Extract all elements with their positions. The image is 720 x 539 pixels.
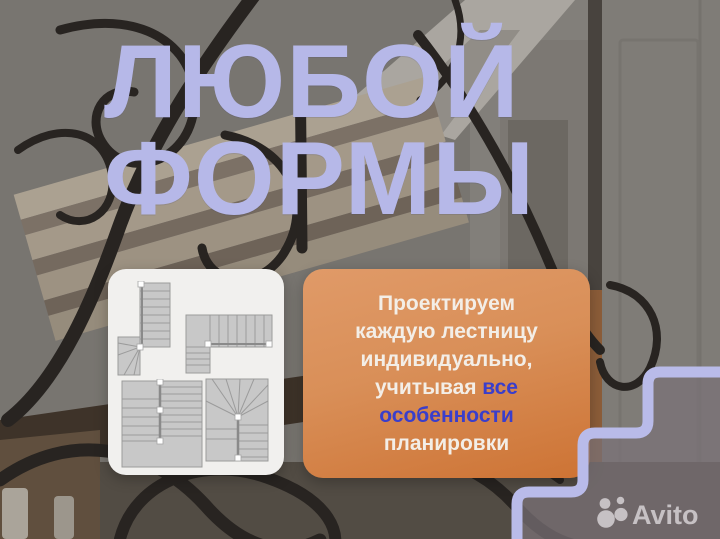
promo-line-1: Проектируем: [303, 290, 590, 318]
promo-line-4-white: учитывая: [375, 376, 482, 399]
stair-plan-u-winder-icon: [204, 377, 270, 463]
promo-line-2: каждую лестницу: [303, 318, 590, 346]
stair-plan-u-landing-icon: [120, 379, 204, 469]
stair-plan-l-winder-icon: [116, 281, 178, 377]
stair-plans-card: [108, 269, 284, 475]
headline: ЛЮБОЙ ФОРМЫ: [104, 34, 535, 228]
ad-creative: ЛЮБОЙ ФОРМЫ: [0, 0, 720, 539]
avito-wordmark: Avito: [632, 500, 699, 530]
avito-logo: Avito: [594, 494, 710, 530]
stair-plan-l-landing-icon: [184, 313, 274, 375]
avito-circles-icon: [597, 497, 627, 528]
headline-line-1: ЛЮБОЙ: [104, 34, 535, 131]
headline-line-2: ФОРМЫ: [104, 131, 535, 228]
